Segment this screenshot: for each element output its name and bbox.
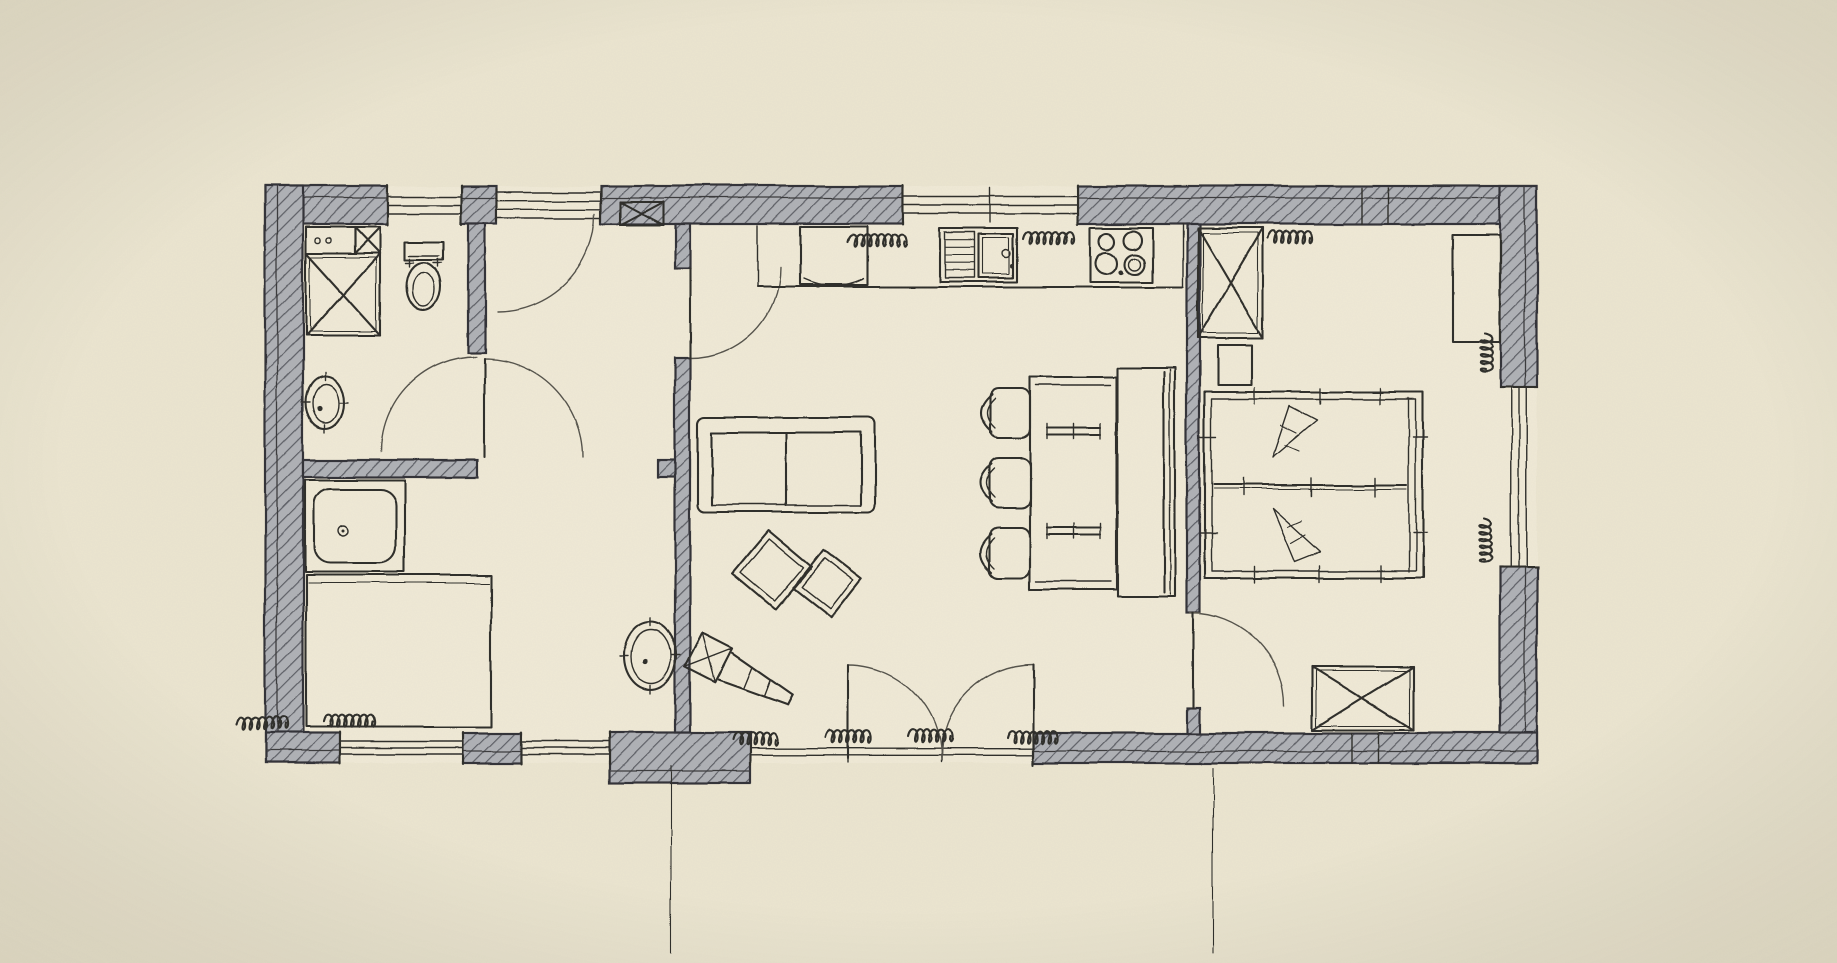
floor-plan-canvas <box>0 0 1837 963</box>
paper-grain-overlay <box>0 0 1837 963</box>
floor-plan-svg <box>0 0 1837 963</box>
